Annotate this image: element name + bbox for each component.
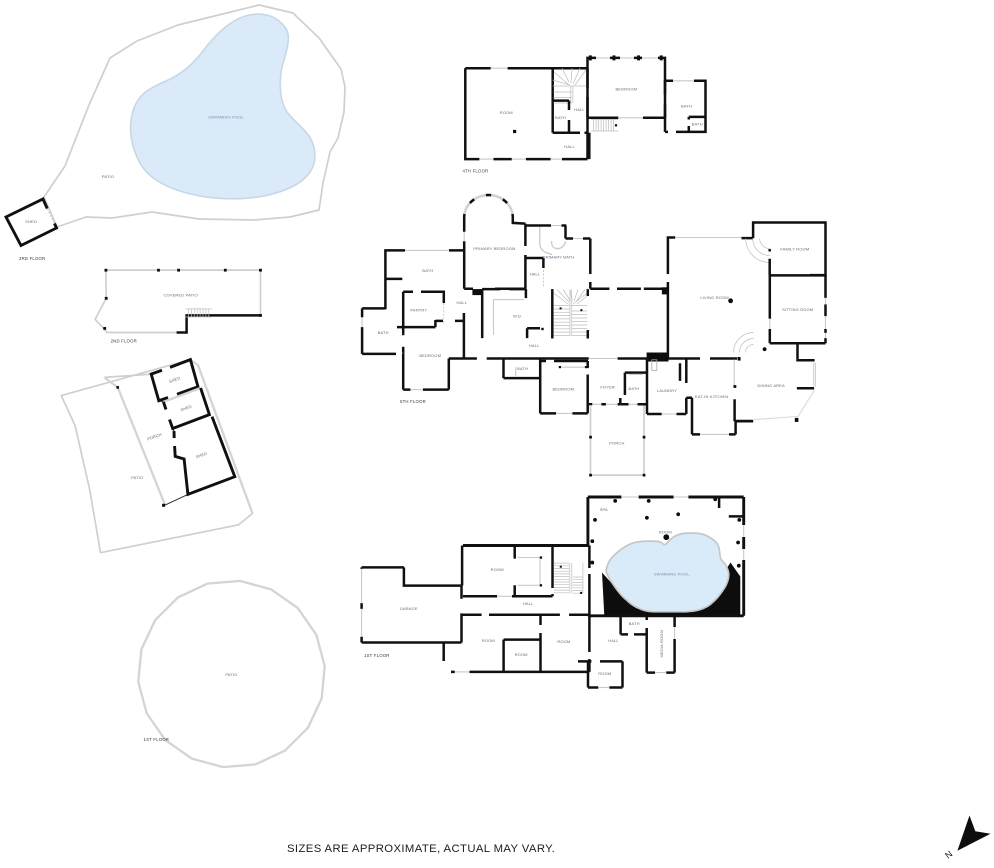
svg-text:SIZES ARE APPROXIMATE, ACTUAL: SIZES ARE APPROXIMATE, ACTUAL MAY VARY. (287, 843, 555, 855)
svg-text:ROOM: ROOM (557, 639, 570, 644)
svg-text:SHED: SHED (195, 451, 208, 460)
svg-text:HALL: HALL (574, 107, 585, 112)
svg-text:HALL: HALL (523, 601, 534, 606)
svg-text:SHED: SHED (180, 404, 193, 413)
svg-text:HALL: HALL (456, 300, 467, 305)
svg-text:PRIMARY BATH: PRIMARY BATH (543, 255, 574, 260)
svg-text:COVERED PATIO: COVERED PATIO (163, 293, 197, 298)
svg-text:PORCH: PORCH (146, 432, 162, 442)
svg-text:ROOM: ROOM (482, 638, 495, 643)
svg-text:ROOM: ROOM (500, 110, 513, 115)
svg-text:N: N (943, 849, 954, 861)
svg-text:BATH: BATH (692, 122, 703, 127)
svg-text:SWIMMING POOL: SWIMMING POOL (208, 115, 244, 120)
svg-text:SITTING ROOM: SITTING ROOM (782, 307, 813, 312)
svg-text:FOYER: FOYER (600, 384, 615, 389)
svg-text:GARAGE: GARAGE (400, 606, 418, 611)
svg-text:PANTRY: PANTRY (410, 308, 427, 313)
svg-text:PATIO: PATIO (225, 672, 237, 677)
svg-text:PATIO: PATIO (102, 174, 114, 179)
svg-text:HALL: HALL (608, 638, 619, 643)
svg-text:PORCH: PORCH (609, 441, 624, 446)
svg-text:HALL: HALL (530, 272, 541, 277)
svg-text:BATH: BATH (681, 104, 692, 109)
svg-text:PRIMARY BEDROOM: PRIMARY BEDROOM (473, 246, 515, 251)
svg-text:2ND FLOOR: 2ND FLOOR (111, 339, 137, 344)
svg-text:BEDROOM: BEDROOM (615, 87, 637, 92)
svg-text:BATH: BATH (629, 621, 640, 626)
svg-text:1ST FLOOR: 1ST FLOOR (144, 737, 170, 742)
svg-text:ROOM: ROOM (491, 567, 504, 572)
svg-text:ROOM: ROOM (515, 652, 528, 657)
svg-text:LAUNDRY: LAUNDRY (657, 388, 677, 393)
svg-text:MEDIA ROOM: MEDIA ROOM (659, 630, 664, 658)
svg-text:EAT-IN KITCHEN: EAT-IN KITCHEN (695, 394, 728, 399)
svg-text:4TH FLOOR: 4TH FLOOR (463, 169, 489, 174)
svg-text:ROOM: ROOM (598, 671, 611, 676)
svg-text:1ST FLOOR: 1ST FLOOR (364, 653, 390, 658)
svg-text:BATH: BATH (378, 330, 389, 335)
svg-text:W.D.: W.D. (513, 313, 522, 318)
svg-text:BATH: BATH (555, 115, 566, 120)
svg-text:BATH: BATH (629, 386, 640, 391)
svg-text:SHED: SHED (168, 375, 181, 384)
svg-text:BEDROOM: BEDROOM (419, 353, 441, 358)
svg-text:BATH: BATH (422, 268, 433, 273)
svg-text:SWIMMING POOL: SWIMMING POOL (654, 572, 690, 577)
svg-text:3RD FLOOR: 3RD FLOOR (19, 256, 45, 261)
svg-text:HALL: HALL (564, 144, 575, 149)
svg-text:5TH FLOOR: 5TH FLOOR (400, 399, 426, 404)
svg-text:BATH: BATH (517, 366, 528, 371)
svg-text:HALL: HALL (529, 343, 540, 348)
svg-text:DINING AREA: DINING AREA (757, 383, 785, 388)
svg-text:BEDROOM: BEDROOM (552, 386, 574, 391)
svg-text:PATIO: PATIO (131, 475, 143, 480)
svg-text:SHED: SHED (25, 219, 37, 224)
svg-text:LIVING ROOM: LIVING ROOM (700, 295, 728, 300)
svg-text:FAMILY ROOM: FAMILY ROOM (780, 247, 809, 252)
svg-text:ROOM: ROOM (659, 529, 672, 534)
svg-text:SPA: SPA (600, 507, 608, 512)
